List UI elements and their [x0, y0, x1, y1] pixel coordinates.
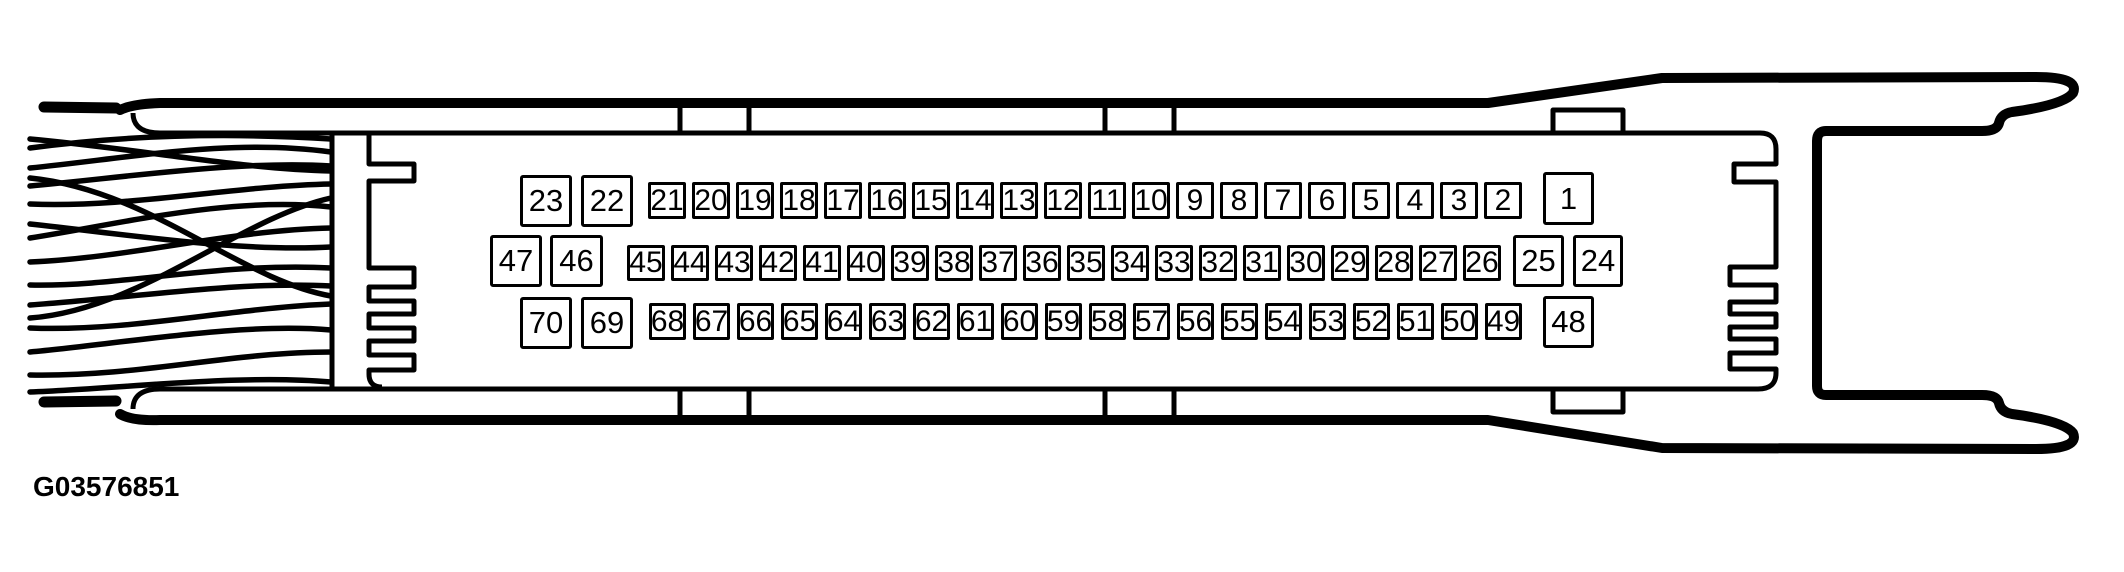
pin-box-37: 37	[979, 245, 1017, 281]
pin-box-67: 67	[693, 303, 730, 340]
pin-box-30: 30	[1287, 245, 1325, 281]
pin-box-21: 21	[648, 182, 686, 219]
pin-box-1: 1	[1543, 172, 1594, 225]
pin-box-7: 7	[1264, 182, 1302, 219]
pin-box-60: 60	[1001, 303, 1038, 340]
pin-box-45: 45	[627, 245, 665, 281]
pin-box-50: 50	[1441, 303, 1478, 340]
pin-box-29: 29	[1331, 245, 1369, 281]
pin-box-35: 35	[1067, 245, 1105, 281]
pin-box-42: 42	[759, 245, 797, 281]
pin-box-61: 61	[957, 303, 994, 340]
pin-box-8: 8	[1220, 182, 1258, 219]
pin-box-36: 36	[1023, 245, 1061, 281]
pin-box-51: 51	[1397, 303, 1434, 340]
pin-box-63: 63	[869, 303, 906, 340]
pin-box-34: 34	[1111, 245, 1149, 281]
pin-box-33: 33	[1155, 245, 1193, 281]
pin-box-64: 64	[825, 303, 862, 340]
pin-box-28: 28	[1375, 245, 1413, 281]
pin-box-18: 18	[780, 182, 818, 219]
pin-box-41: 41	[803, 245, 841, 281]
pin-box-46: 46	[550, 235, 603, 287]
pin-box-65: 65	[781, 303, 818, 340]
pin-box-16: 16	[868, 182, 906, 219]
pin-grid: 2322212019181716151413121110987654321474…	[0, 0, 2124, 572]
pin-box-9: 9	[1176, 182, 1214, 219]
pin-box-66: 66	[737, 303, 774, 340]
pin-box-10: 10	[1132, 182, 1170, 219]
pin-box-62: 62	[913, 303, 950, 340]
pin-box-23: 23	[520, 175, 572, 227]
pin-box-38: 38	[935, 245, 973, 281]
pin-box-6: 6	[1308, 182, 1346, 219]
connector-diagram: 2322212019181716151413121110987654321474…	[0, 0, 2124, 572]
pin-box-15: 15	[912, 182, 950, 219]
pin-box-70: 70	[520, 297, 572, 349]
pin-box-57: 57	[1133, 303, 1170, 340]
pin-box-22: 22	[581, 175, 633, 227]
pin-box-40: 40	[847, 245, 885, 281]
pin-box-11: 11	[1088, 182, 1126, 219]
pin-box-56: 56	[1177, 303, 1214, 340]
pin-box-58: 58	[1089, 303, 1126, 340]
pin-box-39: 39	[891, 245, 929, 281]
pin-box-5: 5	[1352, 182, 1390, 219]
pin-box-31: 31	[1243, 245, 1281, 281]
pin-box-12: 12	[1044, 182, 1082, 219]
pin-box-2: 2	[1484, 182, 1522, 219]
pin-box-14: 14	[956, 182, 994, 219]
pin-box-49: 49	[1485, 303, 1522, 340]
pin-box-27: 27	[1419, 245, 1457, 281]
pin-box-44: 44	[671, 245, 709, 281]
pin-box-47: 47	[490, 235, 542, 287]
pin-box-19: 19	[736, 182, 774, 219]
pin-box-54: 54	[1265, 303, 1302, 340]
pin-box-3: 3	[1440, 182, 1478, 219]
pin-box-48: 48	[1543, 296, 1594, 348]
pin-box-26: 26	[1463, 245, 1501, 281]
pin-box-43: 43	[715, 245, 753, 281]
pin-box-69: 69	[581, 297, 633, 349]
pin-box-52: 52	[1353, 303, 1390, 340]
pin-box-55: 55	[1221, 303, 1258, 340]
pin-box-24: 24	[1573, 235, 1623, 287]
pin-box-25: 25	[1513, 235, 1564, 287]
pin-box-53: 53	[1309, 303, 1346, 340]
pin-box-32: 32	[1199, 245, 1237, 281]
pin-box-20: 20	[692, 182, 730, 219]
figure-label: G03576851	[33, 471, 179, 503]
pin-box-68: 68	[649, 303, 686, 340]
pin-box-13: 13	[1000, 182, 1038, 219]
pin-box-4: 4	[1396, 182, 1434, 219]
pin-box-17: 17	[824, 182, 862, 219]
pin-box-59: 59	[1045, 303, 1082, 340]
